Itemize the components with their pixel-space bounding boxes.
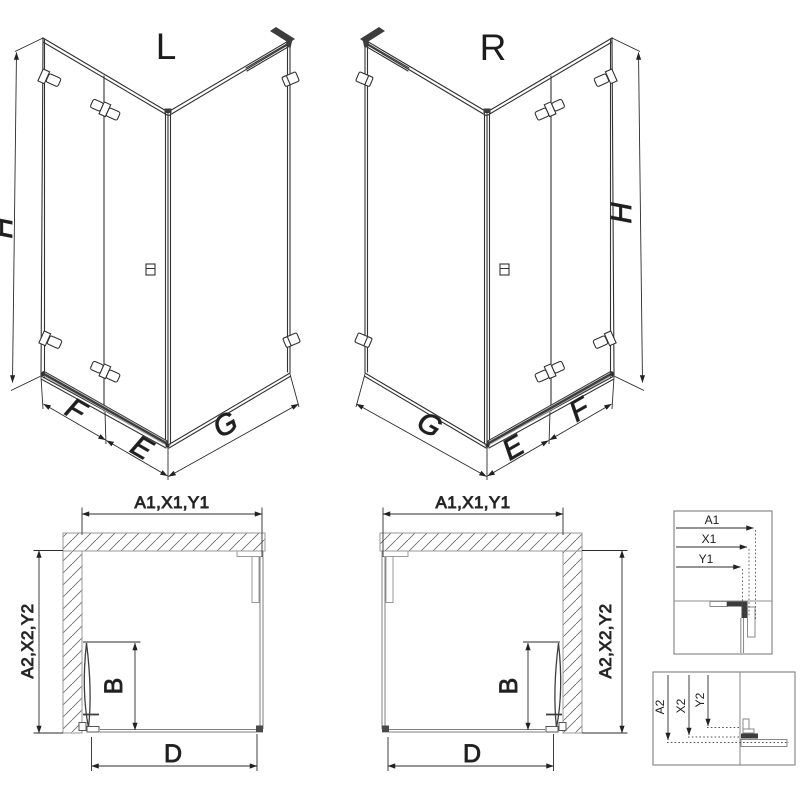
detail-y1-label: Y1 [699,552,714,566]
dim-b-label: B [100,678,128,695]
plan-left-view: A1,X1,Y1 A2,X2,Y2 B D [18,493,265,771]
glass-panels [100,556,263,732]
plan-left-dim-side: A2,X2,Y2 [18,551,63,734]
detail-x1-label: X1 [702,532,717,546]
dim-d-label: D [463,740,481,768]
plan-left-dim-door: B [83,642,141,730]
dim-a1x1y1-label: A1,X1,Y1 [134,493,209,512]
dim-h-label: H [0,217,19,238]
dim-d-label: D [164,740,182,768]
detail-x2-label: X2 [674,698,688,713]
iso-left-dim-height: H [0,38,43,391]
plan-right-view: A1,X1,Y1 A2,X2,Y2 B D [380,493,628,771]
dim-a2x2y2-label: A2,X2,Y2 [18,603,37,678]
detail-a1-label: A1 [705,513,720,527]
corner-profile [237,551,263,603]
dim-a2x2y2-label: A2,X2,Y2 [596,603,615,678]
iso-right-variant-label: R [480,27,507,68]
detail-y2-label: Y2 [693,692,707,707]
shower-enclosure-diagram: L H F E G R H [0,0,800,800]
plan-right-dim-entry: D [388,734,554,771]
iso-left-view: L H F E G [0,26,300,480]
dim-h-label: H [606,202,638,223]
hatched-wall [63,533,265,733]
hatched-wall [380,533,582,733]
glass-panels [382,556,545,732]
detail-a2-label: A2 [653,699,667,714]
plan-right-dim-side: A2,X2,Y2 [582,551,628,734]
plan-right-dim-door: B [495,642,560,730]
iso-left-variant-label: L [156,26,177,67]
diagram-canvas: L H F E G R H [0,0,800,800]
dim-a1x1y1-label: A1,X1,Y1 [435,493,510,512]
corner-profile [382,551,408,603]
iso-right-view: R H F E G [355,27,644,480]
dim-b-label: B [495,678,523,695]
plan-left-dim-entry: D [92,734,258,771]
detail-bottom-box: A2 X2 Y2 [653,672,795,765]
detail-top-box: A1 X1 Y1 [674,511,772,654]
